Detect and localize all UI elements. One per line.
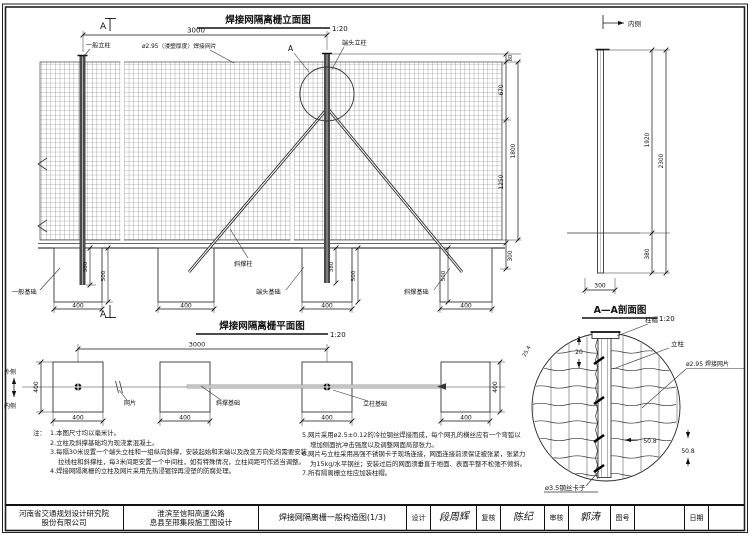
review-signature: 郭涛 xyxy=(579,511,600,525)
dim-below: 300 xyxy=(508,250,514,261)
notes-intro: 注： xyxy=(33,429,46,439)
sheet-title: 焊接网隔离栅一般构造图(1/3) xyxy=(279,513,386,523)
dim-top-offset: 80 xyxy=(508,55,514,61)
date-label: 日期 xyxy=(690,514,704,523)
plan-dim-400: 400 xyxy=(321,415,333,422)
note-4: 4.焊接网隔离栅的立柱及网片采用先热浸镀锌再浸塑的防腐处理。 xyxy=(50,467,312,477)
post-detail-view: 内侧 1920 380 2300 300 xyxy=(567,15,670,294)
check-signature: 陈纪 xyxy=(512,511,533,525)
review-signature-cell: 郭涛 xyxy=(568,506,610,530)
plan-dim-400-right: 400 xyxy=(492,381,499,393)
plan-dim-400: 400 xyxy=(460,415,472,422)
dim-found-depth: 500 xyxy=(351,270,357,281)
date-label-cell: 日期 xyxy=(684,506,708,530)
date-value-cell xyxy=(708,506,744,530)
plan-dim-400-left: 400 xyxy=(33,381,40,393)
plan-mesh-label: 网片 xyxy=(124,399,136,407)
post-cap-section xyxy=(592,332,619,339)
figure-number-value-cell xyxy=(634,506,684,530)
figure-number-label: 图号 xyxy=(616,514,630,523)
section-view: A—A剖面图 1:20 xyxy=(522,304,744,492)
section-mesh-label: ø2.95 焊接网片 xyxy=(686,360,729,368)
dim-found-width: 400 xyxy=(321,303,333,310)
check-signature-cell: 陈纪 xyxy=(500,506,544,530)
design-label: 设计 xyxy=(412,514,426,523)
plan-dim-400: 400 xyxy=(72,415,84,422)
design-signature: 段周辉 xyxy=(438,511,469,525)
figure-number-label-cell: 图号 xyxy=(610,506,634,530)
section-marker-bottom: A xyxy=(100,310,107,320)
dim-lower: 1250 xyxy=(499,174,505,189)
review-label: 审核 xyxy=(550,514,564,523)
brace-foundation-label: 斜撑基础 xyxy=(404,288,429,296)
end-post-label: 端头立柱 xyxy=(342,39,367,47)
company-name-line2: 股份有限公司 xyxy=(42,518,87,527)
plan-brace-foundation-label: 斜撑基础 xyxy=(216,399,240,407)
dim-mesh-h: 50.8 xyxy=(643,438,657,445)
dim-embed: 380 xyxy=(83,261,89,272)
dim-post-above: 1920 xyxy=(645,132,651,147)
mesh-panel xyxy=(40,62,502,240)
brace-post-label: 斜撑柱 xyxy=(234,260,253,268)
section-title: A—A剖面图 xyxy=(594,304,647,316)
outer-side-label: 外侧 xyxy=(4,368,16,376)
plan-post-foundation-label: 立柱基础 xyxy=(363,400,387,408)
general-post-label: 一般立柱 xyxy=(86,42,111,50)
plan-dim-400: 400 xyxy=(179,415,191,422)
dim-mesh-v: 50.8 xyxy=(681,448,695,455)
check-label: 复核 xyxy=(482,514,496,523)
detail-marker: A xyxy=(288,44,294,53)
dim-found-width: 400 xyxy=(180,303,192,310)
dim-span: 3000 xyxy=(187,27,205,35)
drawing-sheet: 焊接网隔离栅立面图 1:20 xyxy=(0,0,750,535)
dim-post-total: 2300 xyxy=(659,153,665,168)
section-marker-top: A xyxy=(100,22,107,32)
note-2: 2.立柱及斜撑基础均为现浇素混凝土。 xyxy=(50,439,312,449)
company-cell: 河南省交通规划设计研究院 股份有限公司 xyxy=(5,506,123,530)
plan-view: 焊接网隔离栅平面图 1:20 3000 网片 斜撑基础 立柱基础 400 400 xyxy=(4,320,505,426)
inner-side-label: 内侧 xyxy=(628,19,641,28)
section-scale: 1:20 xyxy=(659,315,675,323)
end-foundation-label: 端头基础 xyxy=(256,288,281,296)
dim-found-depth: 500 xyxy=(101,270,107,281)
plan-title: 焊接网隔离栅平面图 xyxy=(219,320,305,332)
company-name-line1: 河南省交通规划设计研究院 xyxy=(19,509,109,518)
plan-dim-span: 3000 xyxy=(189,341,206,349)
elevation-view: 焊接网隔离栅立面图 1:20 xyxy=(12,14,521,320)
dim-cap-gap: 20 xyxy=(575,349,583,356)
elevation-scale: 1:20 xyxy=(332,25,348,33)
design-signature-cell: 段周辉 xyxy=(430,506,476,530)
sheet-title-cell: 焊接网隔离栅一般构造图(1/3) xyxy=(258,506,406,530)
dim-post-found-width: 300 xyxy=(594,283,606,290)
dim-post-buried: 380 xyxy=(645,248,651,259)
dim-found-width: 400 xyxy=(72,303,84,310)
post-label: 立柱 xyxy=(671,339,685,348)
notes-right-column: 5.网片采用ø2.5±0.12的冷拉钢丝焊接而成，每个网孔的横丝应有一个弯弧以增… xyxy=(302,431,527,479)
note-1: 1.本图尺寸均以毫米计。 xyxy=(50,429,312,439)
design-label-cell: 设计 xyxy=(406,506,430,530)
dim-upper: 670 xyxy=(499,84,505,95)
check-label-cell: 复核 xyxy=(476,506,500,530)
note-6: 6.网片与立柱采用高强不锈钢卡子现场连接，网面连接前须保证被张紧，张紧力为15k… xyxy=(302,450,527,469)
general-foundation xyxy=(54,248,102,302)
dim-wire-pitch: 25.4 xyxy=(522,344,533,358)
mesh-label: ø2.95（浸塑厚度）焊接网片 xyxy=(142,42,217,50)
project-line1: 淮滨至信阳高速公路 xyxy=(157,509,225,518)
note-7: 7.所有隔离栅立柱应加装柱帽。 xyxy=(302,469,527,479)
project-line2: 息县至邢集段施工图设计 xyxy=(150,518,233,527)
brace-foundation-left xyxy=(158,248,214,302)
dim-embed: 380 xyxy=(329,261,335,272)
clip-label: ø3.5钢丝卡子 xyxy=(545,483,586,492)
cap-label: 柱帽 xyxy=(645,315,659,324)
title-block: 河南省交通规划设计研究院 股份有限公司 淮滨至信阳高速公路 息县至邢集段施工图设… xyxy=(5,504,744,531)
review-label-cell: 审核 xyxy=(544,506,568,530)
plan-scale: 1:20 xyxy=(330,331,346,339)
note-5: 5.网片采用ø2.5±0.12的冷拉钢丝焊接而成，每个网孔的横丝应有一个弯弧以增… xyxy=(302,431,527,450)
mesh-plan-band xyxy=(187,385,444,388)
dim-mesh-height: 1800 xyxy=(511,143,517,158)
general-foundation-label: 一般基础 xyxy=(12,288,37,296)
mesh-panel-gap xyxy=(121,61,125,241)
inner-side-label: 内侧 xyxy=(4,402,16,410)
project-cell: 淮滨至信阳高速公路 息县至邢集段施工图设计 xyxy=(123,506,258,530)
elevation-title: 焊接网隔离栅立面图 xyxy=(225,14,311,26)
note-3: 3.每隔30米设置一个端头立柱和一组纵向斜撑，安装起始和末端以及改变方向处均需要… xyxy=(50,448,312,467)
mesh-band-arrow xyxy=(437,383,446,390)
dim-found-width: 400 xyxy=(460,303,472,310)
notes-left-column: 注： 1.本图尺寸均以毫米计。 2.立柱及斜撑基础均为现浇素混凝土。 3.每隔3… xyxy=(33,429,312,477)
